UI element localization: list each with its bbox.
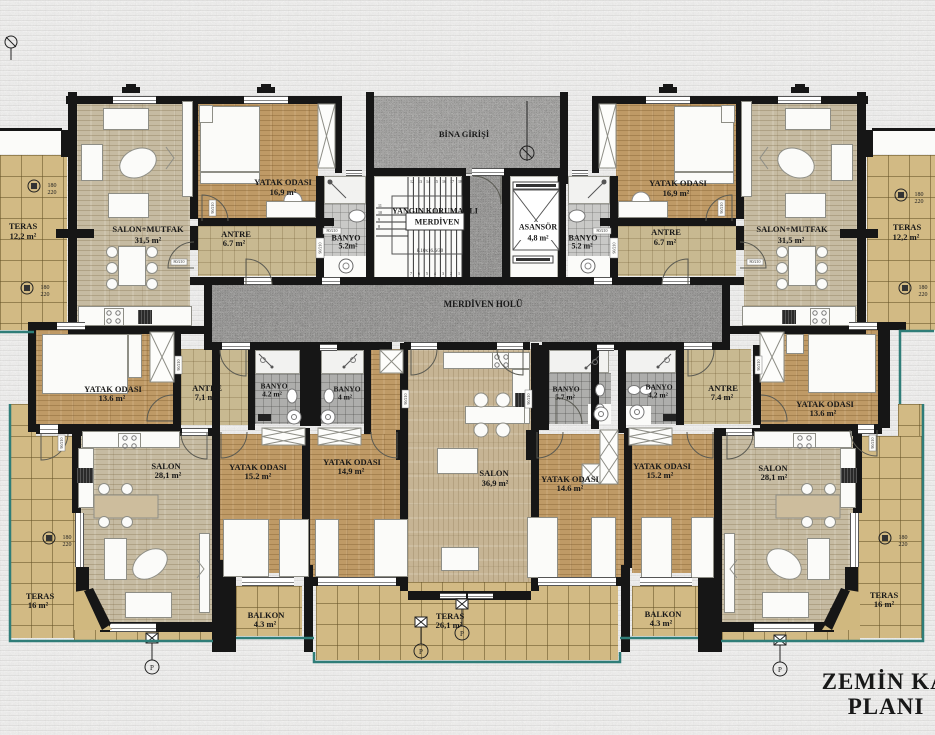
svg-text:220: 220	[899, 542, 908, 548]
svg-text:7: 7	[410, 271, 412, 276]
svg-text:90/210: 90/210	[403, 393, 408, 404]
svg-text:1: 1	[458, 271, 460, 276]
svg-text:15: 15	[434, 179, 438, 184]
svg-text:220: 220	[41, 292, 50, 298]
svg-text:180: 180	[919, 285, 928, 291]
svg-text:180: 180	[41, 285, 50, 291]
svg-text:13: 13	[418, 179, 422, 184]
svg-text:8.10x16.6/30: 8.10x16.6/30	[417, 249, 444, 254]
svg-text:6: 6	[418, 271, 420, 276]
svg-text:220: 220	[63, 542, 72, 548]
svg-text:180: 180	[48, 183, 57, 189]
svg-text:12: 12	[410, 179, 414, 184]
svg-text:2: 2	[450, 271, 452, 276]
svg-text:90/210: 90/210	[59, 437, 64, 448]
svg-text:4: 4	[434, 271, 436, 276]
svg-text:8: 8	[378, 224, 380, 229]
svg-text:180: 180	[63, 535, 72, 541]
svg-text:80/210: 80/210	[749, 259, 760, 264]
svg-text:P: P	[778, 666, 782, 674]
svg-text:P: P	[460, 630, 464, 638]
svg-text:220: 220	[915, 199, 924, 205]
svg-text:180: 180	[899, 535, 908, 541]
svg-text:90/210: 90/210	[756, 359, 761, 370]
svg-text:80/210: 80/210	[173, 259, 184, 264]
svg-text:10: 10	[378, 210, 382, 215]
svg-text:17: 17	[450, 179, 454, 184]
svg-text:3: 3	[442, 271, 444, 276]
svg-text:18: 18	[458, 179, 462, 184]
svg-text:180: 180	[915, 192, 924, 198]
svg-text:5: 5	[426, 271, 428, 276]
svg-text:90/210: 90/210	[612, 242, 617, 253]
svg-text:220: 220	[48, 190, 57, 196]
svg-text:16: 16	[442, 179, 446, 184]
svg-text:14: 14	[426, 179, 430, 184]
svg-text:90/210: 90/210	[870, 437, 875, 448]
svg-text:P: P	[419, 648, 423, 656]
svg-text:90/210: 90/210	[526, 393, 531, 404]
svg-text:90/210: 90/210	[318, 242, 323, 253]
svg-text:80/210: 80/210	[596, 228, 607, 233]
svg-text:P: P	[150, 664, 154, 672]
svg-text:90/210: 90/210	[176, 359, 181, 370]
svg-text:90/210: 90/210	[719, 202, 724, 213]
svg-text:11: 11	[378, 203, 382, 208]
svg-text:80/210: 80/210	[326, 228, 337, 233]
svg-text:220: 220	[919, 292, 928, 298]
svg-text:9: 9	[378, 217, 380, 222]
svg-text:90/210: 90/210	[210, 202, 215, 213]
